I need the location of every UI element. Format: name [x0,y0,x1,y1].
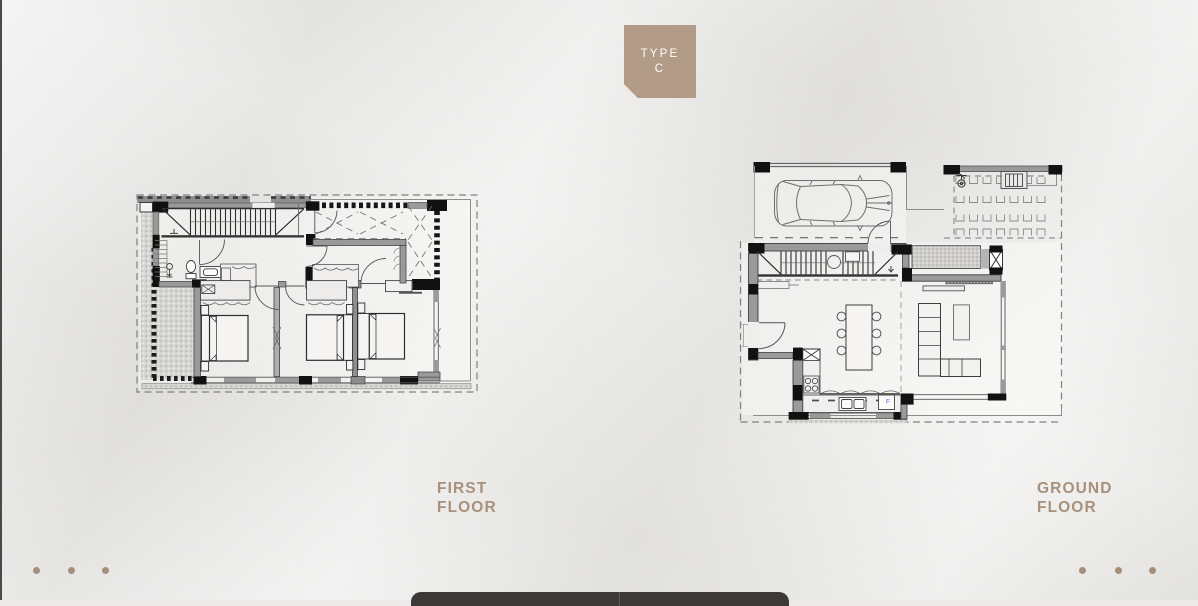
svg-text:F: F [886,399,890,406]
